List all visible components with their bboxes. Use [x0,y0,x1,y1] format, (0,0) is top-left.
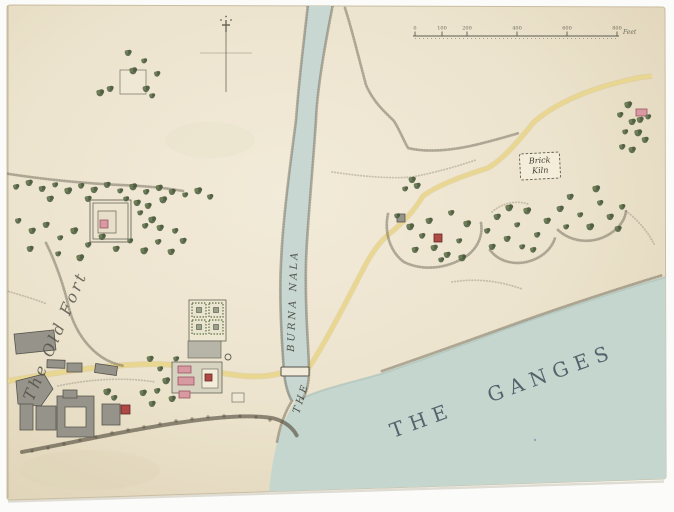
tree-blob [412,247,416,251]
tree-blob [645,115,648,118]
shrub-icon [62,442,65,445]
ink-dot [534,439,536,441]
tree-blob [155,240,158,243]
building [36,406,56,430]
tree-blob [85,243,88,246]
tree-blob [592,186,596,190]
tree-blob [64,188,68,192]
tree-blob [154,72,157,75]
tree-blob [47,196,51,200]
tree-blob [563,225,566,228]
tree-blob [39,186,43,190]
building [67,363,82,372]
scale-tick-label: 800 [612,26,622,32]
garden-plot-pavilion [214,325,219,330]
shrub-icon [126,428,129,431]
garden-plot-pavilion [197,308,202,313]
tree-blob [125,50,129,54]
fort-enclosure [90,200,131,242]
tree-blob [444,252,448,256]
walled-garden [188,300,226,358]
tree-blob [96,90,100,94]
tree-blob [169,189,173,193]
tree-blob [567,194,571,198]
tree-blob [29,228,33,232]
shrub-icon [110,431,113,434]
tree-blob [426,218,430,222]
tree-blob [617,113,620,116]
tree-blob [577,213,580,216]
tree-blob [13,185,16,188]
paper-stain [165,122,255,158]
tree-blob [530,248,533,251]
building-red [434,234,442,242]
tree-blob [143,86,147,90]
scanned-map-sheet-container: Brick Kiln THE GANGES BURNA NALA THE The… [0,0,674,512]
tree-blob [438,258,441,261]
tree-blob [409,177,413,181]
tree-blob [103,389,107,393]
tree-blob [180,238,184,242]
tree-blob [127,239,130,242]
brick-kiln-text-1: Brick [528,155,551,165]
shrub-icon [238,414,241,417]
tree-blob [117,189,120,192]
tree-blob [134,200,138,204]
tree-blob [505,205,509,209]
tree-blob [586,224,590,228]
north-dot [230,19,232,21]
scale-tick-label: 100 [437,26,447,32]
scale-tick-label: 200 [462,26,472,32]
tree-blob [494,214,498,218]
map-canvas: Brick Kiln THE GANGES BURNA NALA THE The… [0,0,674,512]
tree-blob [642,137,646,141]
tree-blob [504,236,508,240]
tree-blob [27,246,31,250]
tree-blob [169,396,173,400]
tree-blob [406,224,410,228]
tree-blob [157,367,160,370]
tree-blob [173,357,176,360]
shrub-icon [206,415,209,418]
tree-blob [141,59,144,62]
tree-blob [414,183,418,187]
shrub-icon [94,435,97,438]
tree-blob [157,225,161,229]
tree-blob [148,217,152,221]
tree-blob [55,252,58,255]
tree-blob [629,119,633,123]
tree-blob [448,211,451,214]
shrub-icon [158,422,161,425]
north-dot [220,19,222,21]
building-pink [179,391,190,398]
tree-blob [99,234,103,238]
tree-blob [622,130,625,133]
tree-blob [70,228,74,232]
tree-blob [615,226,619,230]
tree-blob [619,145,622,148]
tree-blob [143,190,146,193]
building-pink [178,377,194,385]
tree-blob [637,117,641,121]
tree-blob [463,221,467,225]
tree-blob [162,378,166,382]
tree-blob [194,188,198,192]
tree-blob [597,201,600,204]
tree-blob [156,185,160,189]
tree-blob [15,219,18,222]
scale-tick-label: 400 [512,26,522,32]
shrub-icon [142,425,145,428]
tree-blob [514,223,517,226]
tree-blob [154,389,157,392]
tree-blob [140,390,144,394]
shrub-icon [268,418,271,421]
tree-blob [607,214,611,218]
brick-kiln-text-2: Kiln [531,166,549,176]
tree-blob [147,356,151,360]
tree-blob [78,184,81,187]
tree-blob [43,222,47,226]
tree-blob [111,396,114,399]
tree-blob [534,233,537,236]
bridge [281,367,309,376]
tree-blob [104,182,108,186]
tree-blob [76,255,80,259]
tree-blob [544,218,548,222]
tree-blob [123,197,126,200]
tree-blob [149,94,152,97]
north-dot [225,16,227,18]
tree-blob [142,224,145,227]
tree-blob [129,68,133,72]
scale-tick-label: 600 [562,26,572,32]
tree-blob [523,208,527,212]
tree-blob [145,203,149,207]
tree-blob [52,183,55,186]
tree-blob [207,195,210,198]
tree-blob [634,130,638,134]
shrub-icon [46,446,49,449]
tree-blob [113,246,117,250]
shrub-icon [174,419,177,422]
tree-blob [140,248,144,252]
shrub-icon [78,438,81,441]
scale-tick-label: 0 [413,26,416,32]
scale-unit-label: Feet [622,29,637,36]
building-red [121,405,130,414]
tree-blob [85,196,89,200]
tree-blob [57,236,60,239]
compound-outline [232,393,244,402]
tree-blob [26,180,30,184]
tree-blob [402,187,405,190]
building [63,390,77,398]
tree-blob [619,205,622,208]
tree-blob [394,214,397,217]
tree-blob [182,193,185,196]
tree-blob [168,249,172,253]
tree-blob [489,244,493,248]
tree-blob [172,229,175,232]
tree-blob [419,234,422,237]
tree-blob [629,147,633,151]
garden-terrace [188,341,221,358]
shrub-icon [222,414,225,417]
building-pink [100,220,108,228]
shrub-icon [30,449,33,452]
tree-blob [149,401,153,405]
tree-blob [456,239,459,242]
tree-blob [519,245,522,248]
shrub-icon [254,415,257,418]
shrub-icon [190,417,193,420]
tree-blob [458,255,462,259]
building-pink [636,109,647,116]
tree-blob [91,187,95,191]
tree-blob [431,245,435,249]
building [20,404,33,430]
garden-plot-pavilion [214,308,219,313]
building [102,404,120,425]
tree-blob [624,102,628,106]
tree-blob [159,197,163,201]
garden-plot-pavilion [197,325,202,330]
building-red [205,374,212,381]
building-pink [178,366,191,373]
brick-kiln-label: Brick Kiln [519,152,560,180]
tree-blob [137,211,140,214]
paper-stain [20,450,160,490]
tree-blob [484,229,487,232]
tree-blob [107,86,111,90]
tree-blob [129,184,133,188]
tree-blob [557,206,561,210]
